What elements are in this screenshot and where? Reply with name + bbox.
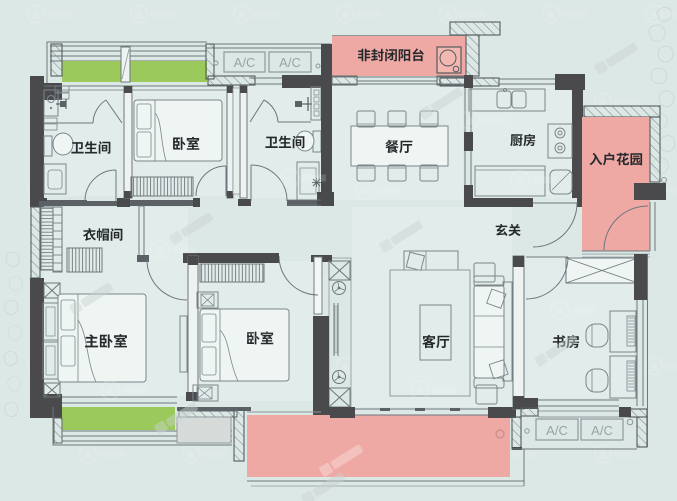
svg-text:A/C: A/C <box>234 55 256 70</box>
svg-text:A/C: A/C <box>546 423 568 438</box>
svg-text:A/C: A/C <box>591 423 613 438</box>
svg-text:A/C: A/C <box>279 55 301 70</box>
